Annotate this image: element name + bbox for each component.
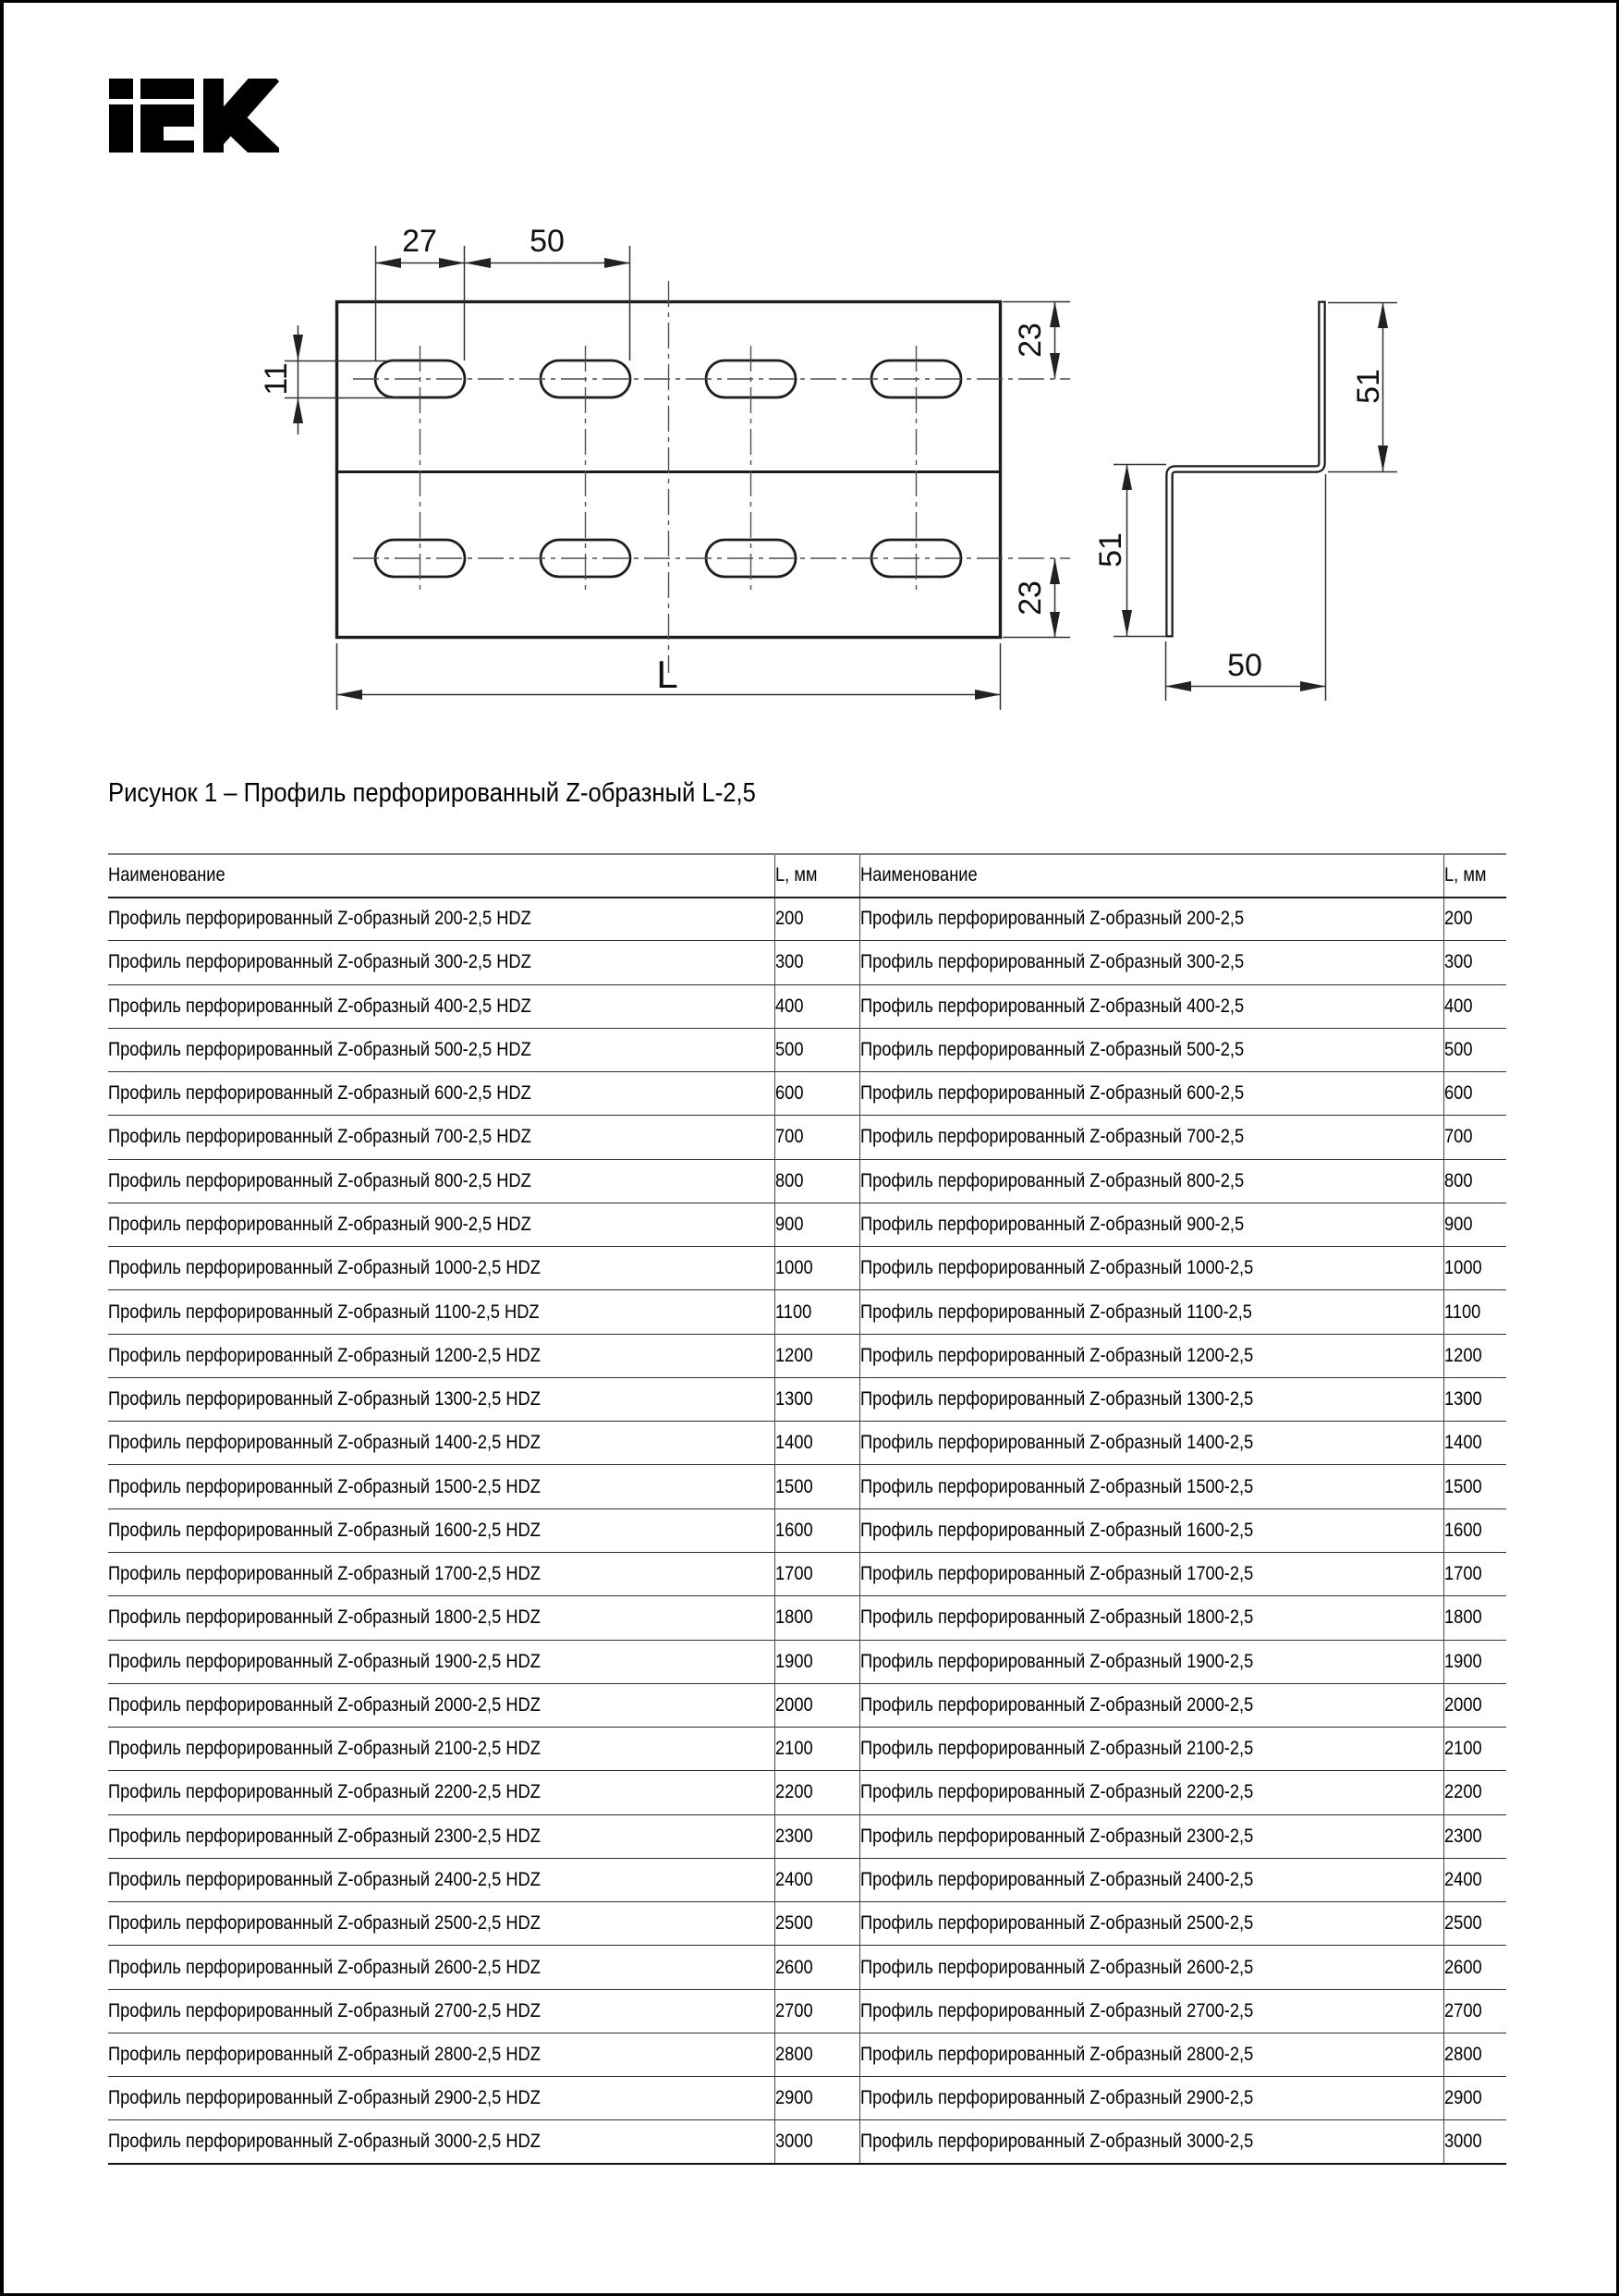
dim-length: L: [656, 653, 677, 696]
name-cell: Профиль перфорированный Z-образный 3000-…: [108, 2120, 774, 2164]
table-row: Профиль перфорированный Z-образный 1300-…: [108, 1377, 1506, 1421]
length-cell: 1100: [1443, 1290, 1506, 1334]
dim-slot-pitch: 50: [530, 224, 565, 259]
name-cell: Профиль перфорированный Z-образный 2600-…: [108, 1946, 774, 1989]
name-cell: Профиль перфорированный Z-образный 1700-…: [859, 1552, 1443, 1595]
dim-slot-width: 11: [259, 362, 294, 395]
length-cell: 1600: [774, 1508, 859, 1552]
length-cell: 2700: [1443, 1989, 1506, 2033]
name-cell: Профиль перфорированный Z-образный 2000-…: [859, 1683, 1443, 1727]
length-cell: 900: [1443, 1203, 1506, 1246]
dim-web-width: 50: [1227, 648, 1262, 683]
name-cell: Профиль перфорированный Z-образный 600-2…: [108, 1072, 774, 1116]
length-cell: 3000: [774, 2120, 859, 2164]
front-view: 27 50 11 23 23 L: [259, 224, 1070, 710]
name-cell: Профиль перфорированный Z-образный 1600-…: [108, 1508, 774, 1552]
name-cell: Профиль перфорированный Z-образный 2000-…: [108, 1683, 774, 1727]
length-cell: 1900: [1443, 1640, 1506, 1683]
length-cell: 2300: [774, 1814, 859, 1858]
name-cell: Профиль перфорированный Z-образный 2100-…: [108, 1728, 774, 1771]
length-cell: 400: [1443, 984, 1506, 1028]
table-row: Профиль перфорированный Z-образный 1700-…: [108, 1552, 1506, 1595]
name-cell: Профиль перфорированный Z-образный 2400-…: [859, 1858, 1443, 1901]
name-cell: Профиль перфорированный Z-образный 2700-…: [108, 1989, 774, 2033]
table-row: Профиль перфорированный Z-образный 1600-…: [108, 1508, 1506, 1552]
table-row: Профиль перфорированный Z-образный 2000-…: [108, 1683, 1506, 1727]
table-row: Профиль перфорированный Z-образный 1200-…: [108, 1334, 1506, 1377]
length-cell: 2100: [774, 1728, 859, 1771]
name-cell: Профиль перфорированный Z-образный 2500-…: [859, 1902, 1443, 1946]
table-row: Профиль перфорированный Z-образный 800-2…: [108, 1159, 1506, 1203]
length-cell: 500: [774, 1028, 859, 1071]
name-cell: Профиль перфорированный Z-образный 2700-…: [859, 1989, 1443, 2033]
length-cell: 2700: [774, 1989, 859, 2033]
name-cell: Профиль перфорированный Z-образный 1000-…: [859, 1247, 1443, 1290]
length-cell: 1800: [774, 1596, 859, 1640]
table-row: Профиль перфорированный Z-образный 1000-…: [108, 1247, 1506, 1290]
length-cell: 1300: [1443, 1377, 1506, 1421]
length-cell: 2800: [774, 2033, 859, 2076]
name-cell: Профиль перфорированный Z-образный 800-2…: [108, 1159, 774, 1203]
name-cell: Профиль перфорированный Z-образный 500-2…: [108, 1028, 774, 1071]
table-row: Профиль перфорированный Z-образный 1100-…: [108, 1290, 1506, 1334]
name-cell: Профиль перфорированный Z-образный 1600-…: [859, 1508, 1443, 1552]
table-row: Профиль перфорированный Z-образный 2100-…: [108, 1728, 1506, 1771]
dim-flange-right: 51: [1351, 369, 1386, 404]
name-cell: Профиль перфорированный Z-образный 300-2…: [859, 941, 1443, 984]
length-cell: 1500: [1443, 1465, 1506, 1508]
length-cell: 2800: [1443, 2033, 1506, 2076]
name-cell: Профиль перфорированный Z-образный 1300-…: [859, 1377, 1443, 1421]
length-cell: 500: [1443, 1028, 1506, 1071]
name-cell: Профиль перфорированный Z-образный 1400-…: [859, 1422, 1443, 1465]
table-row: Профиль перфорированный Z-образный 2300-…: [108, 1814, 1506, 1858]
length-cell: 1200: [774, 1334, 859, 1377]
name-cell: Профиль перфорированный Z-образный 1300-…: [108, 1377, 774, 1421]
length-cell: 3000: [1443, 2120, 1506, 2164]
table-row: Профиль перфорированный Z-образный 300-2…: [108, 941, 1506, 984]
dim-flange-left: 51: [1093, 532, 1128, 568]
length-cell: 2400: [1443, 1858, 1506, 1901]
header-length-2: L, мм: [1443, 854, 1506, 898]
name-cell: Профиль перфорированный Z-образный 700-2…: [859, 1116, 1443, 1159]
name-cell: Профиль перфорированный Z-образный 1200-…: [859, 1334, 1443, 1377]
name-cell: Профиль перфорированный Z-образный 1800-…: [108, 1596, 774, 1640]
dim-edge-offset-top: 23: [1013, 323, 1048, 358]
length-cell: 2900: [1443, 2077, 1506, 2120]
dimension-lines: [1114, 302, 1397, 701]
length-cell: 2300: [1443, 1814, 1506, 1858]
name-cell: Профиль перфорированный Z-образный 1800-…: [859, 1596, 1443, 1640]
name-cell: Профиль перфорированный Z-образный 900-2…: [859, 1203, 1443, 1246]
name-cell: Профиль перфорированный Z-образный 800-2…: [859, 1159, 1443, 1203]
name-cell: Профиль перфорированный Z-образный 200-2…: [108, 898, 774, 941]
name-cell: Профиль перфорированный Z-образный 2300-…: [108, 1814, 774, 1858]
length-cell: 1700: [1443, 1552, 1506, 1595]
table-row: Профиль перфорированный Z-образный 2800-…: [108, 2033, 1506, 2076]
dimension-arrows: [1122, 302, 1388, 691]
table-row: Профиль перфорированный Z-образный 2200-…: [108, 1771, 1506, 1814]
length-cell: 1100: [774, 1290, 859, 1334]
table-row: Профиль перфорированный Z-образный 1500-…: [108, 1465, 1506, 1508]
name-cell: Профиль перфорированный Z-образный 2400-…: [108, 1858, 774, 1901]
name-cell: Профиль перфорированный Z-образный 400-2…: [108, 984, 774, 1028]
table-row: Профиль перфорированный Z-образный 600-2…: [108, 1072, 1506, 1116]
table-row: Профиль перфорированный Z-образный 200-2…: [108, 898, 1506, 941]
length-cell: 1800: [1443, 1596, 1506, 1640]
length-cell: 600: [774, 1072, 859, 1116]
name-cell: Профиль перфорированный Z-образный 2200-…: [859, 1771, 1443, 1814]
length-cell: 400: [774, 984, 859, 1028]
table-row: Профиль перфорированный Z-образный 700-2…: [108, 1116, 1506, 1159]
table-row: Профиль перфорированный Z-образный 2900-…: [108, 2077, 1506, 2120]
length-cell: 1300: [774, 1377, 859, 1421]
length-cell: 2000: [774, 1683, 859, 1727]
length-cell: 900: [774, 1203, 859, 1246]
name-cell: Профиль перфорированный Z-образный 2600-…: [859, 1946, 1443, 1989]
name-cell: Профиль перфорированный Z-образный 400-2…: [859, 984, 1443, 1028]
name-cell: Профиль перфорированный Z-образный 2900-…: [108, 2077, 774, 2120]
length-cell: 1600: [1443, 1508, 1506, 1552]
length-cell: 1400: [774, 1422, 859, 1465]
table-row: Профиль перфорированный Z-образный 3000-…: [108, 2120, 1506, 2164]
name-cell: Профиль перфорированный Z-образный 1500-…: [108, 1465, 774, 1508]
length-cell: 300: [1443, 941, 1506, 984]
name-cell: Профиль перфорированный Z-образный 1400-…: [108, 1422, 774, 1465]
name-cell: Профиль перфорированный Z-образный 2800-…: [859, 2033, 1443, 2076]
table-row: Профиль перфорированный Z-образный 1800-…: [108, 1596, 1506, 1640]
length-cell: 600: [1443, 1072, 1506, 1116]
name-cell: Профиль перфорированный Z-образный 1000-…: [108, 1247, 774, 1290]
length-cell: 300: [774, 941, 859, 984]
length-cell: 2600: [1443, 1946, 1506, 1989]
name-cell: Профиль перфорированный Z-образный 300-2…: [108, 941, 774, 984]
length-cell: 2900: [774, 2077, 859, 2120]
length-cell: 1000: [1443, 1247, 1506, 1290]
table-row: Профиль перфорированный Z-образный 1400-…: [108, 1422, 1506, 1465]
length-cell: 2200: [774, 1771, 859, 1814]
name-cell: Профиль перфорированный Z-образный 700-2…: [108, 1116, 774, 1159]
header-name-hdz: Наименование: [108, 854, 774, 898]
length-cell: 1000: [774, 1247, 859, 1290]
name-cell: Профиль перфорированный Z-образный 1900-…: [859, 1640, 1443, 1683]
name-cell: Профиль перфорированный Z-образный 2200-…: [108, 1771, 774, 1814]
name-cell: Профиль перфорированный Z-образный 2500-…: [108, 1902, 774, 1946]
length-cell: 1200: [1443, 1334, 1506, 1377]
length-cell: 2200: [1443, 1771, 1506, 1814]
length-cell: 2100: [1443, 1728, 1506, 1771]
figure-drawing: 27 50 11 23 23 L: [0, 0, 1619, 749]
name-cell: Профиль перфорированный Z-образный 1100-…: [859, 1290, 1443, 1334]
length-cell: 200: [1443, 898, 1506, 941]
length-cell: 2500: [774, 1902, 859, 1946]
name-cell: Профиль перфорированный Z-образный 1700-…: [108, 1552, 774, 1595]
dim-slot-length: 27: [402, 224, 437, 259]
table-row: Профиль перфорированный Z-образный 2700-…: [108, 1989, 1506, 2033]
length-cell: 2500: [1443, 1902, 1506, 1946]
product-table-body: Профиль перфорированный Z-образный 200-2…: [108, 898, 1506, 2165]
table-row: Профиль перфорированный Z-образный 900-2…: [108, 1203, 1506, 1246]
name-cell: Профиль перфорированный Z-образный 500-2…: [859, 1028, 1443, 1071]
length-cell: 2000: [1443, 1683, 1506, 1727]
table-header: Наименование L, мм Наименование L, мм: [108, 854, 1506, 898]
name-cell: Профиль перфорированный Z-образный 2800-…: [108, 2033, 774, 2076]
length-cell: 2400: [774, 1858, 859, 1901]
table-row: Профиль перфорированный Z-образный 2500-…: [108, 1902, 1506, 1946]
length-cell: 800: [1443, 1159, 1506, 1203]
length-cell: 700: [774, 1116, 859, 1159]
length-cell: 800: [774, 1159, 859, 1203]
name-cell: Профиль перфорированный Z-образный 2300-…: [859, 1814, 1443, 1858]
length-cell: 1700: [774, 1552, 859, 1595]
table-row: Профиль перфорированный Z-образный 500-2…: [108, 1028, 1506, 1071]
table-row: Профиль перфорированный Z-образный 1900-…: [108, 1640, 1506, 1683]
name-cell: Профиль перфорированный Z-образный 1500-…: [859, 1465, 1443, 1508]
length-cell: 200: [774, 898, 859, 941]
header-name: Наименование: [859, 854, 1443, 898]
length-cell: 1400: [1443, 1422, 1506, 1465]
name-cell: Профиль перфорированный Z-образный 1900-…: [108, 1640, 774, 1683]
name-cell: Профиль перфорированный Z-образный 2100-…: [859, 1728, 1443, 1771]
name-cell: Профиль перфорированный Z-образный 600-2…: [859, 1072, 1443, 1116]
name-cell: Профиль перфорированный Z-образный 200-2…: [859, 898, 1443, 941]
product-table: Наименование L, мм Наименование L, мм Пр…: [108, 853, 1506, 2165]
name-cell: Профиль перфорированный Z-образный 900-2…: [108, 1203, 774, 1246]
name-cell: Профиль перфорированный Z-образный 2900-…: [859, 2077, 1443, 2120]
length-cell: 700: [1443, 1116, 1506, 1159]
length-cell: 1900: [774, 1640, 859, 1683]
name-cell: Профиль перфорированный Z-образный 1100-…: [108, 1290, 774, 1334]
table-row: Профиль перфорированный Z-образный 400-2…: [108, 984, 1506, 1028]
name-cell: Профиль перфорированный Z-образный 3000-…: [859, 2120, 1443, 2164]
figure-caption: Рисунок 1 – Профиль перфорированный Z-об…: [108, 778, 828, 809]
length-cell: 1500: [774, 1465, 859, 1508]
table-row: Профиль перфорированный Z-образный 2600-…: [108, 1946, 1506, 1989]
dim-edge-offset-bottom: 23: [1013, 580, 1048, 616]
length-cell: 2600: [774, 1946, 859, 1989]
name-cell: Профиль перфорированный Z-образный 1200-…: [108, 1334, 774, 1377]
table-row: Профиль перфорированный Z-образный 2400-…: [108, 1858, 1506, 1901]
side-view: 51 51 50: [1093, 301, 1397, 702]
header-length-1: L, мм: [774, 854, 859, 898]
